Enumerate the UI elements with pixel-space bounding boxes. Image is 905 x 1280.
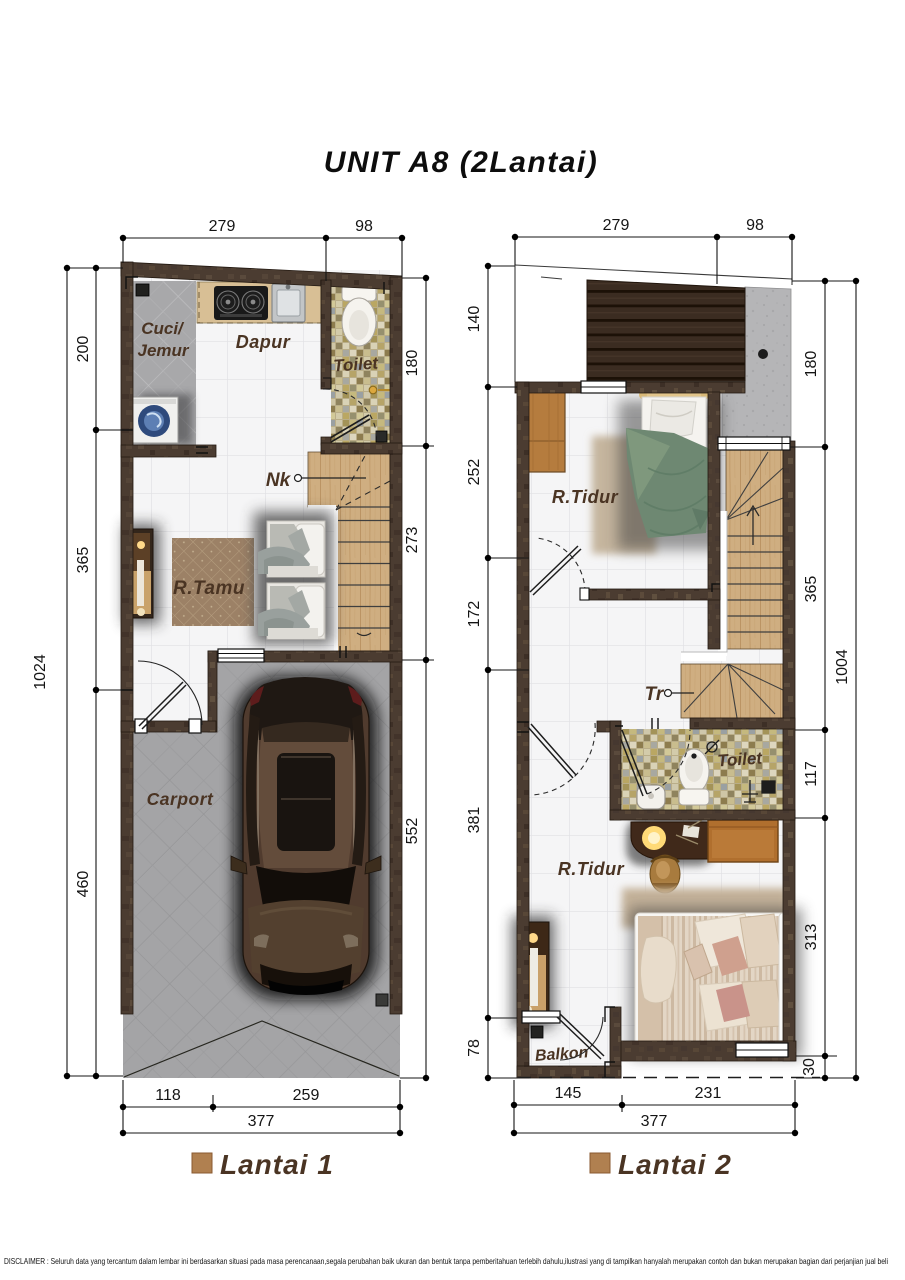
- svg-text:145: 145: [555, 1085, 582, 1102]
- svg-text:Carport: Carport: [147, 789, 214, 809]
- svg-text:180: 180: [803, 351, 820, 378]
- svg-text:279: 279: [603, 217, 630, 234]
- svg-text:552: 552: [404, 818, 421, 845]
- svg-text:R.Tamu: R.Tamu: [173, 578, 245, 599]
- svg-text:200: 200: [75, 336, 92, 363]
- svg-text:140: 140: [466, 306, 483, 333]
- svg-text:180: 180: [404, 350, 421, 377]
- svg-text:365: 365: [803, 576, 820, 603]
- svg-text:78: 78: [466, 1039, 483, 1057]
- svg-text:Jemur: Jemur: [137, 341, 189, 360]
- svg-text:Cuci/: Cuci/: [141, 319, 185, 338]
- svg-text:Lantai 1: Lantai 1: [220, 1149, 334, 1180]
- svg-text:172: 172: [466, 601, 483, 628]
- svg-text:R.Tidur: R.Tidur: [558, 859, 625, 879]
- svg-text:Lantai 2: Lantai 2: [618, 1149, 732, 1180]
- svg-text:30: 30: [801, 1058, 818, 1076]
- svg-text:279: 279: [209, 218, 236, 235]
- svg-text:273: 273: [404, 527, 421, 554]
- svg-text:313: 313: [803, 924, 820, 951]
- svg-text:1004: 1004: [834, 649, 851, 685]
- svg-text:UNIT A8 (2Lantai): UNIT A8 (2Lantai): [324, 146, 598, 179]
- svg-text:R.Tidur: R.Tidur: [552, 487, 619, 507]
- svg-text:98: 98: [746, 217, 764, 234]
- svg-text:377: 377: [641, 1113, 668, 1130]
- svg-text:381: 381: [466, 807, 483, 834]
- svg-text:259: 259: [293, 1087, 320, 1104]
- svg-text:117: 117: [803, 761, 820, 787]
- svg-text:Nk: Nk: [266, 470, 292, 491]
- svg-text:377: 377: [248, 1113, 275, 1130]
- svg-text:1024: 1024: [32, 654, 49, 690]
- svg-text:460: 460: [75, 871, 92, 898]
- svg-text:Tr: Tr: [645, 684, 665, 705]
- svg-text:DISCLAIMER : Seluruh data yang: DISCLAIMER : Seluruh data yang tercantum…: [4, 1256, 888, 1266]
- svg-text:Toilet: Toilet: [333, 353, 380, 375]
- svg-text:231: 231: [695, 1085, 722, 1102]
- svg-text:98: 98: [355, 218, 373, 235]
- svg-text:118: 118: [155, 1087, 181, 1104]
- svg-text:365: 365: [75, 547, 92, 574]
- svg-text:Toilet: Toilet: [717, 748, 764, 770]
- svg-text:252: 252: [466, 459, 483, 486]
- svg-text:Dapur: Dapur: [236, 332, 291, 352]
